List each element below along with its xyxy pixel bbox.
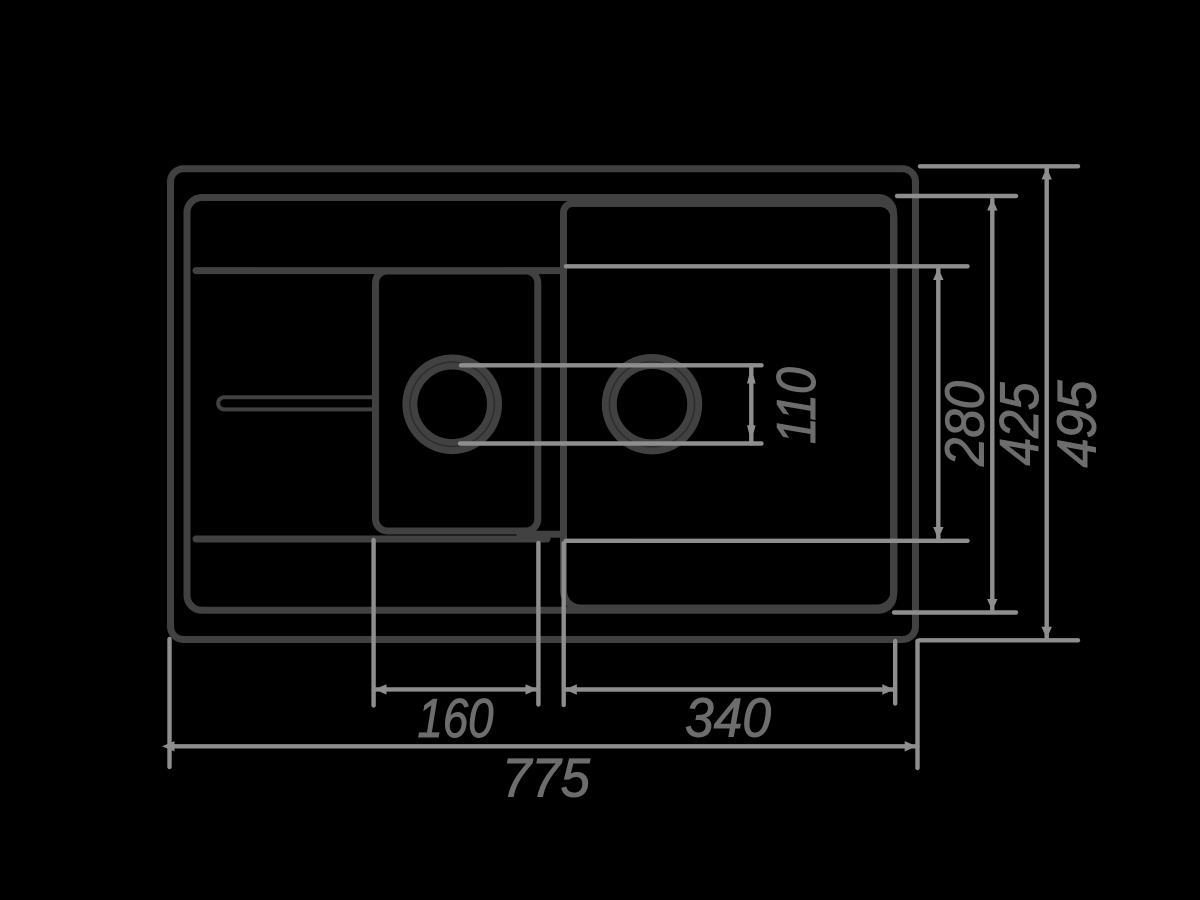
svg-text:110: 110 [765, 367, 827, 444]
svg-text:775: 775 [502, 747, 590, 809]
svg-text:160: 160 [418, 687, 494, 749]
svg-text:280: 280 [933, 381, 995, 467]
svg-text:495: 495 [1045, 380, 1107, 467]
svg-text:340: 340 [685, 687, 771, 749]
svg-text:425: 425 [988, 382, 1050, 465]
